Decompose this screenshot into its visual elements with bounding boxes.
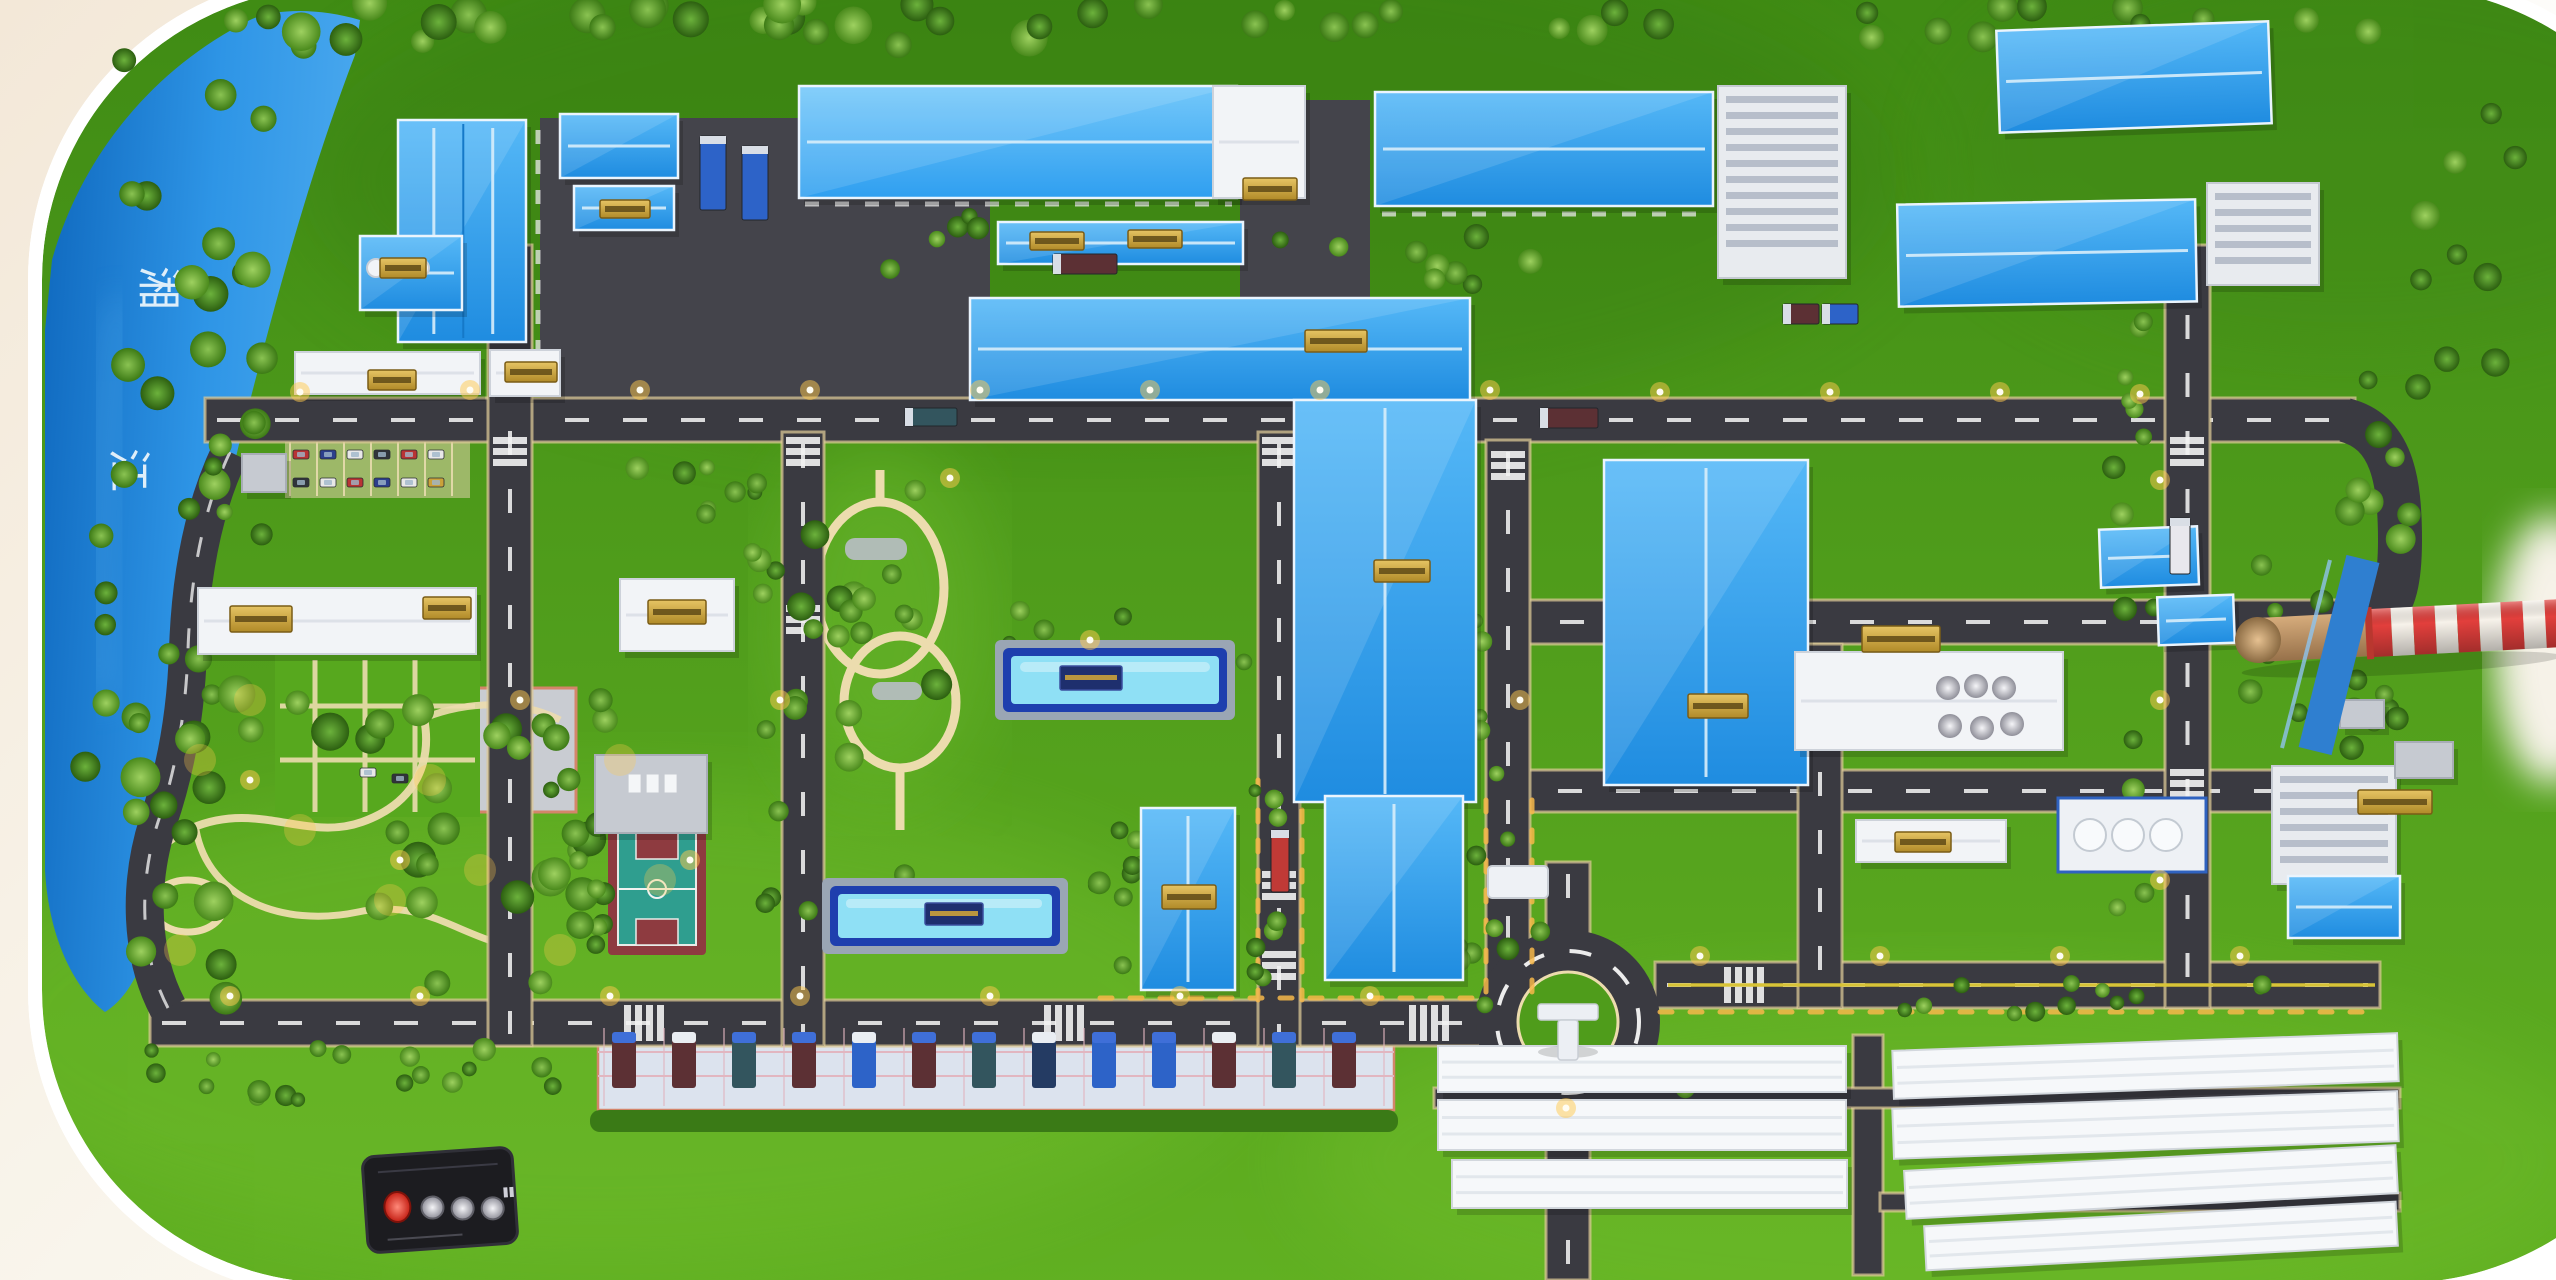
dock-truck-cab xyxy=(972,1032,996,1043)
window-strip xyxy=(2215,225,2311,232)
tree xyxy=(2385,447,2404,466)
tree xyxy=(1114,888,1133,907)
tree xyxy=(2386,524,2416,554)
tree xyxy=(562,820,590,848)
tree xyxy=(507,736,531,760)
signboard-text-band xyxy=(1035,238,1079,244)
tree xyxy=(421,4,457,40)
building-wh xyxy=(1438,1046,1851,1099)
tree xyxy=(175,265,209,299)
tree xyxy=(217,504,233,520)
tree xyxy=(1925,18,1952,45)
building-blue xyxy=(1375,92,1718,213)
tree xyxy=(235,252,271,288)
window xyxy=(647,775,659,793)
window-strip xyxy=(2215,193,2311,200)
tree xyxy=(587,880,606,899)
tree xyxy=(2128,988,2144,1004)
car-windshield xyxy=(351,480,359,485)
truck-cab xyxy=(700,136,726,144)
building-whitewin xyxy=(1718,86,1851,285)
dock-truck-cab xyxy=(672,1032,696,1043)
tree xyxy=(1464,224,1489,249)
footbridge xyxy=(1488,866,1548,898)
tree xyxy=(799,901,818,920)
signboard-plaque xyxy=(423,597,471,619)
window-strip xyxy=(1726,208,1838,215)
tree xyxy=(569,851,587,869)
street-lamp xyxy=(1147,387,1154,394)
tree xyxy=(282,12,321,51)
tree xyxy=(442,1072,463,1093)
light-glow xyxy=(644,864,676,896)
signboard-text-band xyxy=(1900,839,1946,845)
street-lamp xyxy=(947,475,954,482)
building-blue xyxy=(560,114,683,185)
tree xyxy=(95,614,116,635)
car-windshield xyxy=(378,452,386,457)
window-strip xyxy=(2280,856,2388,863)
tree xyxy=(803,619,823,639)
light-glow xyxy=(544,934,576,966)
signboard-plaque xyxy=(1305,330,1367,352)
panel-button xyxy=(481,1197,504,1220)
signboard-plaque xyxy=(1030,232,1084,250)
tree xyxy=(1549,18,1570,39)
street-lamp xyxy=(1487,387,1494,394)
street-lamp xyxy=(777,697,784,704)
tree xyxy=(835,6,873,44)
tree xyxy=(1967,21,1998,52)
tree xyxy=(1352,11,1379,38)
dock-hedge xyxy=(590,1110,1398,1132)
tree xyxy=(1027,14,1053,40)
tree xyxy=(2346,477,2371,502)
tree xyxy=(743,543,762,562)
signboard-plaque xyxy=(230,606,292,632)
tree xyxy=(204,457,222,475)
tree xyxy=(1530,922,1550,942)
tree xyxy=(2253,975,2271,993)
tree xyxy=(1489,766,1504,781)
crosswalk xyxy=(1262,448,1296,455)
street-lamp xyxy=(2137,391,2144,398)
tree xyxy=(400,1046,420,1066)
panel-button xyxy=(421,1196,444,1219)
signboard-text-band xyxy=(2363,799,2427,805)
tree xyxy=(2474,263,2502,291)
street-lamp xyxy=(1827,389,1834,396)
crosswalk xyxy=(635,1005,642,1041)
dock-truck-cab xyxy=(1212,1032,1236,1043)
tree xyxy=(531,1057,552,1078)
tree xyxy=(2134,312,2153,331)
crosswalk xyxy=(493,459,527,466)
tree xyxy=(2135,883,2155,903)
tree xyxy=(543,724,570,751)
signboard-plaque xyxy=(1128,230,1182,248)
tree xyxy=(1272,231,1289,248)
window xyxy=(665,775,677,793)
dock-truck-cab xyxy=(912,1032,936,1043)
crosswalk xyxy=(1262,962,1296,969)
window-strip xyxy=(1726,176,1838,183)
building-gray xyxy=(2395,742,2458,785)
building-blue xyxy=(1604,460,1813,792)
street-lamp xyxy=(1697,953,1704,960)
tree xyxy=(2397,503,2421,527)
truck-cab xyxy=(1053,254,1061,274)
dock-truck-cab xyxy=(1092,1032,1116,1043)
tree xyxy=(2102,456,2125,479)
tree xyxy=(803,19,829,45)
tree xyxy=(247,1080,270,1103)
tree xyxy=(311,713,349,751)
signboard-text-band xyxy=(1310,338,1362,344)
crosswalk xyxy=(2170,437,2204,444)
tree xyxy=(2007,1006,2022,1021)
crosswalk xyxy=(1055,1005,1062,1041)
tree xyxy=(1246,938,1265,957)
tree xyxy=(880,259,900,279)
tree xyxy=(787,592,815,620)
truck xyxy=(742,146,768,220)
tree xyxy=(199,1079,215,1095)
tree xyxy=(246,342,278,374)
crosswalk xyxy=(1262,951,1296,958)
car-windshield xyxy=(297,480,305,485)
tree xyxy=(724,481,745,502)
gray-roof xyxy=(242,454,286,492)
sphere-tank xyxy=(1964,674,1988,698)
tree xyxy=(1114,956,1132,974)
tree xyxy=(1274,0,1295,21)
tree xyxy=(1111,822,1129,840)
signboard-text-band xyxy=(1133,236,1177,242)
signboard-plaque xyxy=(1162,885,1216,909)
window-strip xyxy=(2280,840,2388,847)
crosswalk xyxy=(2170,459,2204,466)
tree xyxy=(566,911,594,939)
signboard-plaque xyxy=(1374,560,1430,582)
window-strip xyxy=(1726,128,1838,135)
car-windshield xyxy=(432,480,440,485)
tree xyxy=(673,1,709,37)
street-lamp xyxy=(1657,389,1664,396)
crosswalk xyxy=(1491,473,1525,480)
tree xyxy=(93,689,120,716)
tree xyxy=(285,690,309,714)
tree xyxy=(1954,977,1970,993)
tree xyxy=(112,48,136,72)
car-windshield xyxy=(297,452,305,457)
crosswalk xyxy=(1262,437,1296,444)
warehouse-roof xyxy=(1438,1046,1846,1092)
building-blue xyxy=(1294,400,1481,809)
tree xyxy=(238,717,264,743)
tree xyxy=(1424,268,1445,289)
tree xyxy=(2447,244,2467,264)
tree xyxy=(538,857,571,890)
signboard-text-band xyxy=(653,609,701,615)
building-wh xyxy=(1452,1160,1852,1215)
crosswalk xyxy=(646,1005,653,1041)
tree xyxy=(2251,554,2272,575)
tree xyxy=(1236,654,1253,671)
signboard-text-band xyxy=(1065,675,1117,680)
tree xyxy=(428,812,460,844)
building-blue xyxy=(1996,21,2277,140)
panel-power-button xyxy=(383,1191,411,1223)
tree xyxy=(2411,201,2440,230)
signboard-text-band xyxy=(1867,636,1935,642)
tree xyxy=(1114,608,1132,626)
panel-label-mark xyxy=(503,1187,508,1197)
tree xyxy=(1477,997,1494,1014)
monument-top xyxy=(1538,1004,1598,1020)
tree xyxy=(242,411,265,434)
truck-cab xyxy=(1783,304,1791,324)
tree xyxy=(291,1092,305,1106)
dock-truck-cab xyxy=(1032,1032,1056,1043)
crosswalk xyxy=(1077,1005,1084,1041)
tree xyxy=(330,23,363,56)
signboard-plaque xyxy=(1243,178,1297,200)
tree xyxy=(1249,784,1262,797)
tree xyxy=(905,480,926,501)
signboard-text-band xyxy=(1248,186,1292,192)
street-lamp xyxy=(977,387,984,394)
tree xyxy=(835,743,864,772)
car-windshield xyxy=(432,452,440,457)
tree xyxy=(2267,603,2283,619)
tree xyxy=(89,524,113,548)
tree xyxy=(178,498,200,520)
tree xyxy=(696,504,715,523)
tree xyxy=(1897,1003,1912,1018)
street-lamp xyxy=(2057,953,2064,960)
street-lamp xyxy=(297,389,304,396)
window-strip xyxy=(2215,257,2311,264)
tree xyxy=(129,713,149,733)
street-lamp xyxy=(417,993,424,1000)
tree xyxy=(2504,146,2527,169)
truck xyxy=(1053,254,1117,274)
tree xyxy=(1034,619,1055,640)
tree xyxy=(194,881,234,921)
tree xyxy=(2110,996,2124,1010)
tree xyxy=(192,771,225,804)
building-lblue xyxy=(799,86,1242,205)
monument-stem xyxy=(1558,1020,1578,1060)
signboard-text-band xyxy=(1693,703,1743,709)
street-lamp xyxy=(797,993,804,1000)
dock-truck-cab xyxy=(1332,1032,1356,1043)
window-strip xyxy=(1726,240,1838,247)
street-lamp xyxy=(247,777,254,784)
truck-cab xyxy=(742,146,768,154)
street-lamp xyxy=(2237,953,2244,960)
street-lamp xyxy=(807,387,814,394)
signboard-text-band xyxy=(1379,568,1425,574)
tree xyxy=(528,970,552,994)
crosswalk xyxy=(1431,1005,1438,1041)
tree xyxy=(850,622,873,645)
crosswalk xyxy=(1420,1005,1427,1041)
tree xyxy=(152,883,178,909)
crosswalk xyxy=(493,437,527,444)
garden-paved-patch xyxy=(845,538,907,560)
sphere-tank xyxy=(1936,676,1960,700)
tree xyxy=(1500,832,1515,847)
window-strip xyxy=(2215,241,2311,248)
tree xyxy=(2443,150,2466,173)
street-lamp xyxy=(607,993,614,1000)
tree xyxy=(202,227,235,260)
tree xyxy=(2481,103,2502,124)
tree xyxy=(2108,899,2126,917)
tree xyxy=(2294,7,2319,32)
truck xyxy=(1540,408,1598,428)
tree xyxy=(2410,269,2432,291)
warehouse-roof xyxy=(1452,1160,1847,1208)
tree xyxy=(1247,963,1264,980)
building-gray xyxy=(2340,700,2389,735)
tree xyxy=(2124,730,2143,749)
tree xyxy=(1643,9,1674,40)
sphere-tank xyxy=(2000,712,2024,736)
pool-signboard xyxy=(925,903,983,925)
tree xyxy=(1010,601,1030,621)
tree xyxy=(1269,808,1288,827)
dock-truck-cab xyxy=(612,1032,636,1043)
street-lamp xyxy=(987,993,994,1000)
truck-cab xyxy=(905,408,913,426)
parking-lot xyxy=(285,438,470,498)
tree xyxy=(1267,911,1287,931)
sphere-tank xyxy=(1938,714,1962,738)
tree xyxy=(1241,10,1269,38)
tree xyxy=(1916,997,1932,1013)
garden-paved-patch xyxy=(872,682,922,700)
tree xyxy=(2365,421,2392,448)
tree xyxy=(119,181,145,207)
street-lamp xyxy=(397,857,404,864)
window-strip xyxy=(2280,824,2388,831)
tree xyxy=(2359,371,2378,390)
car-windshield xyxy=(364,770,372,775)
street-lamp xyxy=(2157,697,2164,704)
tree xyxy=(2025,1002,2045,1022)
tree xyxy=(121,757,161,797)
crosswalk xyxy=(657,1005,664,1041)
tree xyxy=(1123,856,1142,875)
tree xyxy=(474,11,507,44)
street-lamp xyxy=(1367,993,1374,1000)
window-strip xyxy=(1726,160,1838,167)
tree xyxy=(2063,975,2080,992)
street-lamp xyxy=(1997,389,2004,396)
tree xyxy=(209,433,232,456)
street-lamp xyxy=(2157,477,2164,484)
crosswalk xyxy=(1409,1005,1416,1041)
signboard-text-band xyxy=(510,369,552,375)
crosswalk xyxy=(493,448,527,455)
light-glow xyxy=(234,684,266,716)
tree xyxy=(2135,429,2152,446)
tree xyxy=(2355,19,2381,45)
tree xyxy=(544,1077,562,1095)
tree xyxy=(768,801,788,821)
tree xyxy=(126,936,156,966)
crosswalk xyxy=(786,437,820,444)
crosswalk xyxy=(1066,1005,1073,1041)
light-glow xyxy=(414,764,446,796)
tree xyxy=(206,1052,221,1067)
light-glow xyxy=(604,744,636,776)
tree xyxy=(1329,237,1348,256)
street-lamp xyxy=(1087,637,1094,644)
tree xyxy=(396,1074,413,1091)
tree xyxy=(1518,249,1543,274)
building-blue xyxy=(970,298,1475,407)
crosswalk xyxy=(786,448,820,455)
light-glow xyxy=(284,814,316,846)
tree xyxy=(144,1043,158,1057)
tree xyxy=(501,880,534,913)
tree xyxy=(256,5,281,30)
tree xyxy=(332,1045,351,1064)
tree xyxy=(2481,348,2509,376)
warehouse-roof xyxy=(1438,1100,1846,1150)
car-windshield xyxy=(378,480,386,485)
window-strip xyxy=(1726,112,1838,119)
light-glow xyxy=(374,884,406,916)
street-lamp xyxy=(1177,993,1184,1000)
tree xyxy=(386,820,410,844)
road xyxy=(1853,1035,1883,1275)
crosswalk xyxy=(2170,448,2204,455)
tree xyxy=(250,106,276,132)
signboard-plaque xyxy=(1688,694,1748,718)
light-glow xyxy=(164,934,196,966)
building-white xyxy=(1795,652,2068,757)
tree xyxy=(1859,25,1884,50)
signboard-text-band xyxy=(385,265,421,271)
tree xyxy=(587,935,606,954)
building-whitewin xyxy=(2272,766,2401,891)
tree xyxy=(626,457,650,481)
tree xyxy=(836,700,863,727)
signboard-text-band xyxy=(605,206,645,212)
window-strip xyxy=(2215,209,2311,216)
tree xyxy=(753,584,773,604)
crosswalk xyxy=(1262,893,1296,900)
tree xyxy=(206,949,237,980)
truck-cab xyxy=(1822,304,1830,324)
signboard-text-band xyxy=(930,911,978,916)
street-lamp xyxy=(467,387,474,394)
car-windshield xyxy=(396,776,404,781)
signboard-text-band xyxy=(373,377,411,383)
tree xyxy=(473,1038,496,1061)
tree xyxy=(699,459,715,475)
signboard-text-band xyxy=(235,616,287,622)
clarifier-tanks xyxy=(2058,798,2206,872)
truck xyxy=(700,136,726,210)
street-lamp xyxy=(687,857,694,864)
tree xyxy=(926,7,955,36)
